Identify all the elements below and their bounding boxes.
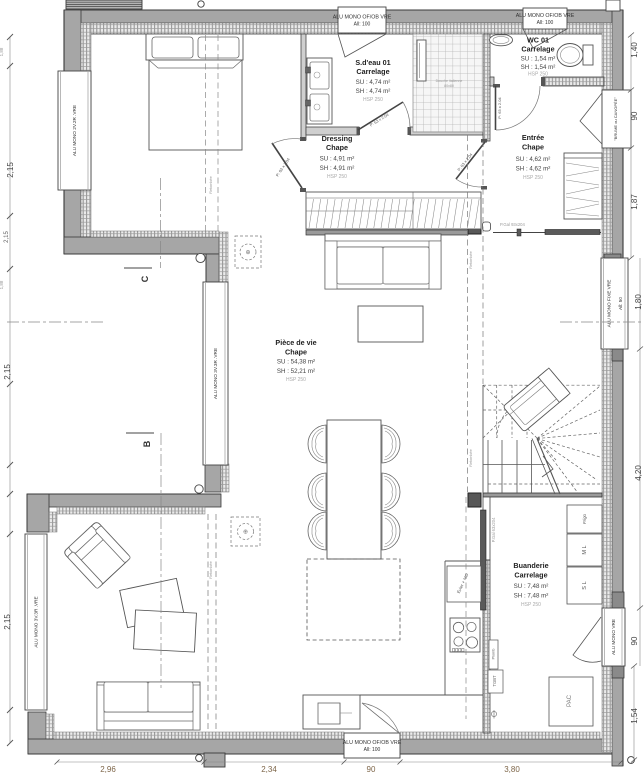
svg-text:SH : 7,48 m²: SH : 7,48 m² [514,593,549,600]
svg-text:HSP 250: HSP 250 [286,377,306,383]
svg-text:SH : 4,91 m²: SH : 4,91 m² [320,165,355,172]
svg-text:Entrée: Entrée [522,133,544,142]
svg-text:S L: S L [582,581,588,589]
svg-text:Frigo: Frigo [582,513,587,524]
svg-text:HSP 250: HSP 250 [523,175,543,181]
svg-text:HSP 250: HSP 250 [521,602,541,608]
svg-text:80x80: 80x80 [444,84,454,88]
svg-text:2,15: 2,15 [4,231,10,243]
svg-text:S.d'eau 01: S.d'eau 01 [355,58,390,67]
svg-text:All: 50: All: 50 [618,297,623,310]
svg-text:SU : 4,74 m²: SU : 4,74 m² [356,79,391,86]
svg-text:2,34: 2,34 [261,765,277,774]
svg-text:Carrelage: Carrelage [521,45,554,54]
svg-text:All: 100: All: 100 [364,747,381,753]
svg-text:SU : 1,54 m²: SU : 1,54 m² [521,56,556,63]
svg-text:SH : 4,74 m²: SH : 4,74 m² [356,88,391,95]
svg-text:ALU MONO OF/OB VRE: ALU MONO OF/OB VRE [333,15,392,21]
svg-text:2,96: 2,96 [100,765,116,774]
svg-text:1,40: 1,40 [630,42,639,58]
svg-text:Douche italienne: Douche italienne [436,79,463,83]
svg-text:"BRUME ou CANOPÉE": "BRUME ou CANOPÉE" [613,97,618,141]
svg-text:M L: M L [582,545,588,554]
svg-text:Retombée: Retombée [469,449,473,467]
svg-text:Carrelage: Carrelage [356,67,389,76]
svg-text:90: 90 [630,636,639,645]
svg-text:B: B [142,440,152,447]
svg-text:Retombée: Retombée [209,176,213,194]
svg-text:SH : 1,54 m²: SH : 1,54 m² [521,64,556,71]
svg-text:ALU MONO 2V.2R .VRE: ALU MONO 2V.2R .VRE [72,105,77,156]
svg-text:Chape: Chape [522,143,544,152]
svg-text:SH : 52,21 m²: SH : 52,21 m² [277,368,315,375]
svg-text:HSP 250: HSP 250 [363,97,383,103]
svg-text:Pièce de vie: Pièce de vie [275,338,316,347]
svg-text:1,87: 1,87 [630,194,639,210]
svg-text:TGBT: TGBT [492,675,497,687]
svg-text:Chape: Chape [285,348,307,357]
svg-text:All: 100: All: 100 [354,22,371,28]
svg-text:P.Gal 63x204: P.Gal 63x204 [491,517,496,543]
svg-text:SU : 7,48 m²: SU : 7,48 m² [514,583,549,590]
svg-text:1,88: 1,88 [0,47,4,56]
svg-text:90: 90 [367,765,376,774]
svg-text:ALU MONO OF/OB VRE: ALU MONO OF/OB VRE [516,13,575,19]
svg-text:C: C [140,275,150,282]
svg-text:⊕: ⊕ [243,530,248,536]
svg-text:1,54: 1,54 [630,708,639,724]
svg-text:P: 63 x 2.04: P: 63 x 2.04 [497,97,502,119]
svg-text:ALU MONO 3V.3R .VRE: ALU MONO 3V.3R .VRE [213,348,218,399]
svg-text:ALU MONO OF/OB VRE: ALU MONO OF/OB VRE [343,740,402,746]
svg-text:ALU MONO FIXE VRE: ALU MONO FIXE VRE [606,280,611,328]
svg-text:HSP 250: HSP 250 [528,72,548,78]
svg-text:WC 01: WC 01 [527,36,549,45]
svg-text:2,15: 2,15 [6,162,15,178]
svg-text:P.Gal 93x204: P.Gal 93x204 [500,222,526,227]
svg-text:1,88: 1,88 [0,280,4,289]
svg-text:SU : 54,38 m²: SU : 54,38 m² [277,359,315,366]
svg-text:HSP 250: HSP 250 [327,174,347,180]
svg-text:3,80: 3,80 [504,765,520,774]
svg-text:SU : 4,62 m²: SU : 4,62 m² [516,156,551,163]
svg-text:SU : 4,91 m²: SU : 4,91 m² [320,156,355,163]
svg-text:PAC: PAC [567,694,573,707]
svg-text:ALU MONO 3V.3R .VRE: ALU MONO 3V.3R .VRE [34,596,39,647]
svg-text:⊕: ⊕ [245,250,250,256]
svg-text:ALU MONO VRE: ALU MONO VRE [611,619,616,655]
svg-text:Carrelage: Carrelage [514,571,547,580]
svg-text:90: 90 [630,111,639,120]
svg-text:Dressing: Dressing [322,134,353,143]
svg-text:SH : 4,62 m²: SH : 4,62 m² [516,166,551,173]
svg-text:2,15: 2,15 [3,364,12,380]
svg-text:Chape: Chape [326,143,348,152]
svg-text:1,80: 1,80 [634,294,643,310]
svg-text:Retombée: Retombée [209,561,213,579]
svg-text:All: 100: All: 100 [537,20,554,26]
svg-text:2,15: 2,15 [3,614,12,630]
svg-text:Buanderie: Buanderie [513,561,548,570]
svg-text:4,20: 4,20 [634,465,643,481]
svg-text:Retombée: Retombée [469,251,473,269]
svg-text:Plomb: Plomb [492,649,496,660]
